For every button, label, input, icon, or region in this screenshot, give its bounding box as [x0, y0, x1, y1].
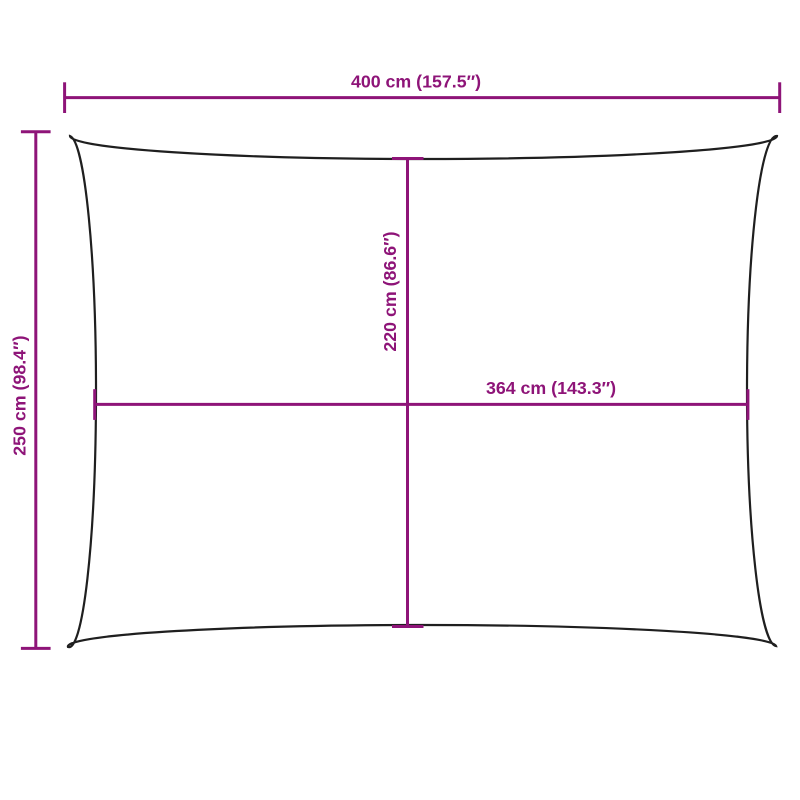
svg-text:250 cm (98.4″): 250 cm (98.4″) [10, 335, 30, 455]
svg-text:220 cm (86.6″): 220 cm (86.6″) [380, 231, 400, 351]
svg-text:364 cm (143.3″): 364 cm (143.3″) [486, 378, 616, 398]
svg-text:400 cm (157.5″): 400 cm (157.5″) [351, 72, 481, 92]
